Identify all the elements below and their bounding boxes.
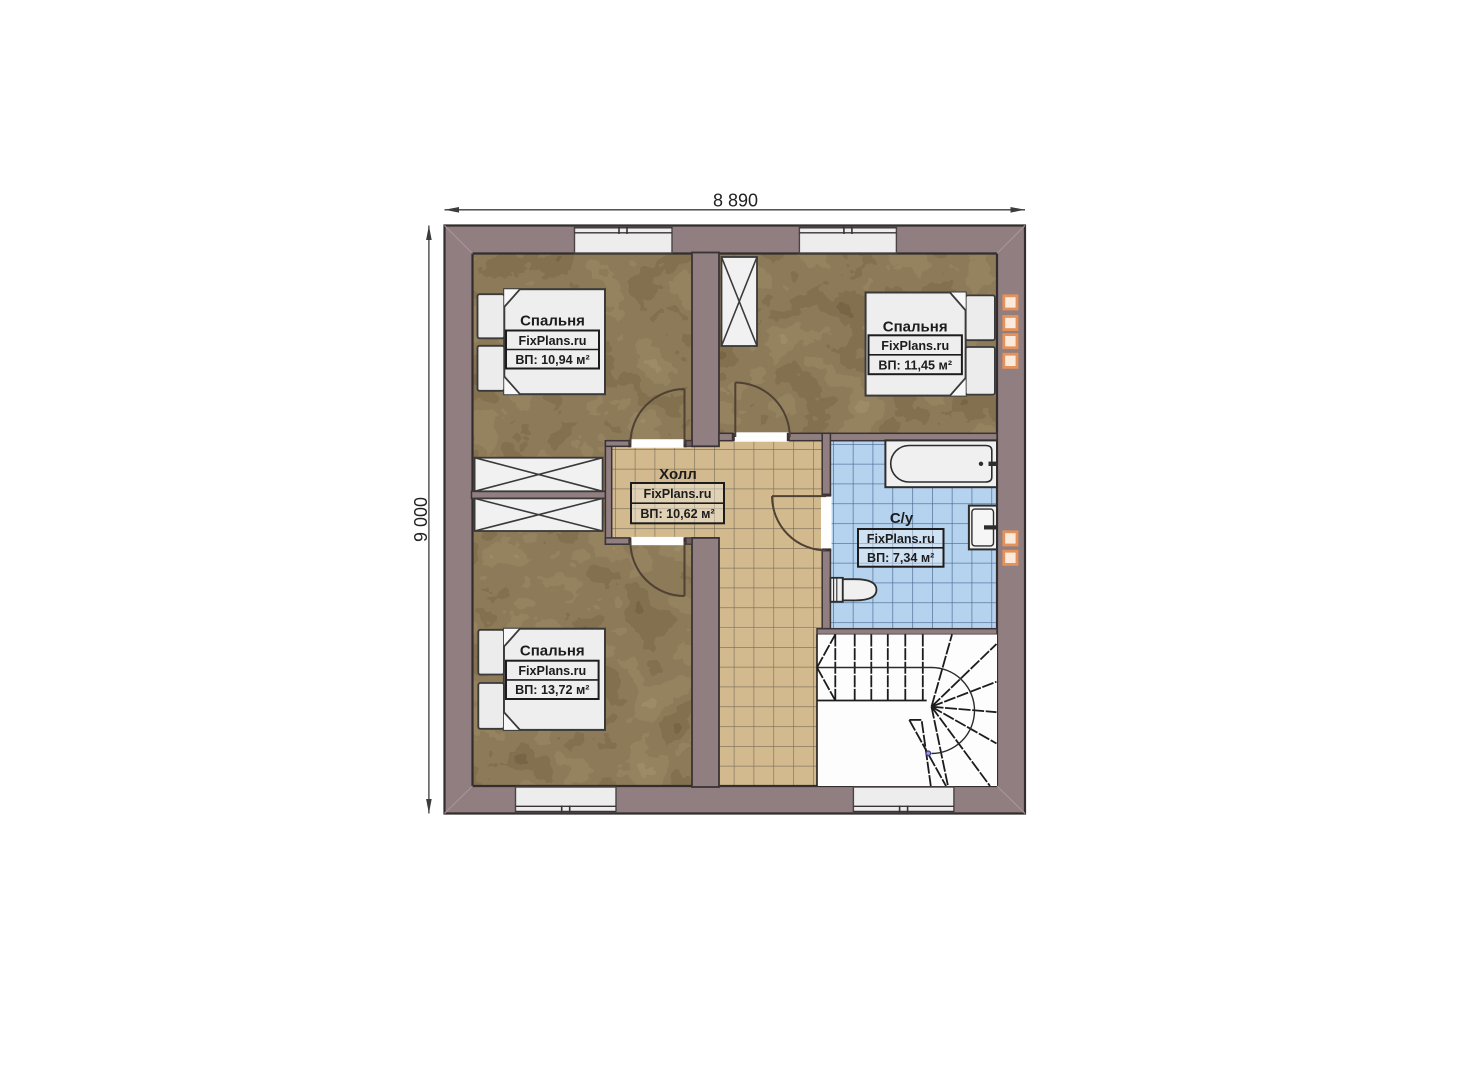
svg-text:С/у: С/у	[890, 510, 914, 527]
svg-text:ВП: 7,34 м²: ВП: 7,34 м²	[867, 551, 934, 565]
svg-text:ВП: 10,62 м²: ВП: 10,62 м²	[640, 507, 714, 521]
svg-text:ВП: 11,45 м²: ВП: 11,45 м²	[878, 358, 952, 372]
svg-text:FixPlans.ru: FixPlans.ru	[867, 532, 935, 546]
svg-text:Холл: Холл	[659, 466, 697, 483]
svg-text:Спальня: Спальня	[520, 643, 585, 660]
svg-text:FixPlans.ru: FixPlans.ru	[644, 487, 712, 501]
svg-text:ВП: 10,94 м²: ВП: 10,94 м²	[515, 353, 589, 367]
svg-text:FixPlans.ru: FixPlans.ru	[518, 664, 586, 678]
svg-text:8 890: 8 890	[713, 190, 758, 210]
svg-text:Спальня: Спальня	[520, 313, 585, 330]
svg-text:Спальня: Спальня	[883, 318, 948, 335]
svg-text:FixPlans.ru: FixPlans.ru	[881, 339, 949, 353]
svg-text:9 000: 9 000	[411, 497, 431, 542]
svg-text:ВП: 13,72 м²: ВП: 13,72 м²	[515, 683, 589, 697]
svg-text:FixPlans.ru: FixPlans.ru	[519, 334, 587, 348]
